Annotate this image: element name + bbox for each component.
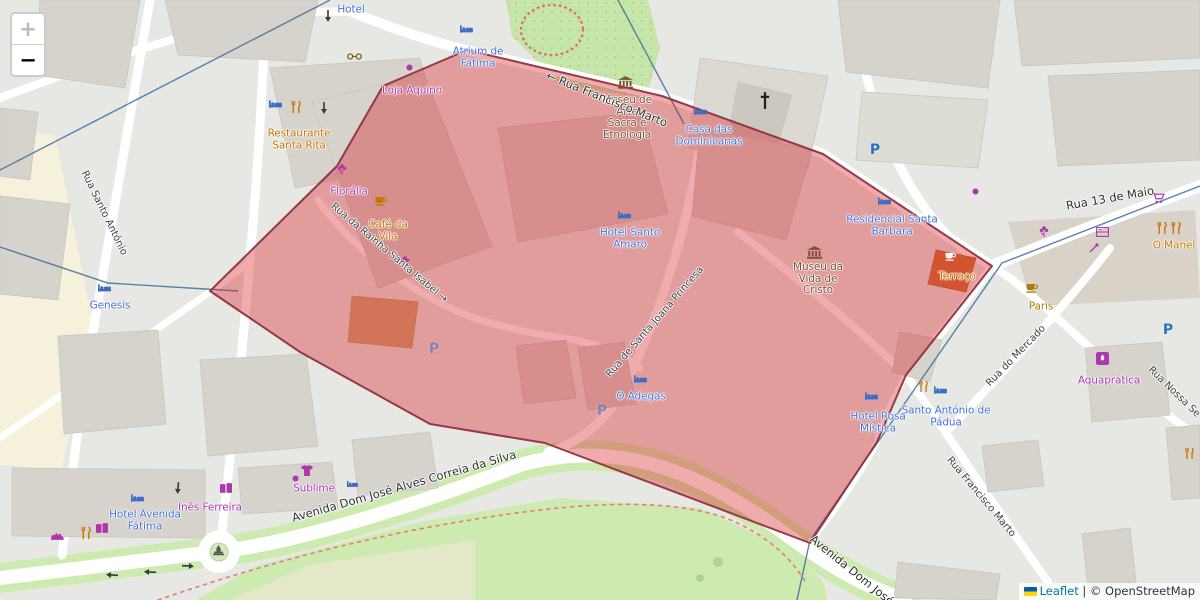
leaflet-link[interactable]: Leaflet	[1040, 584, 1079, 598]
poi-label-residencial-santa-barbara: Residencial Santa Barbara	[846, 215, 938, 238]
poi-label-atrium-de-fatima: Atrium de Fátima	[447, 47, 509, 70]
parking-symbol: P	[429, 341, 439, 357]
poi-label-aquapratica: Aquaprática	[1078, 375, 1140, 387]
poi-label-genesis: Genesis	[90, 300, 131, 312]
poi-label-floralia: Florália	[330, 186, 368, 198]
poi-label-restaurante-santa-rita: Restaurante Santa Rita	[258, 129, 340, 152]
poi-label-sublime: Sublime	[293, 483, 335, 495]
poi-label-o-manel: O Manel	[1153, 240, 1195, 252]
shop-dot-icon	[406, 64, 412, 70]
poi-label-casa-das-dominicanas: Casa das Dominicanas	[668, 125, 750, 148]
bed-icon	[460, 25, 473, 32]
poi-label-hotel-avenida-fatima: Hotel Avenida Fátima	[100, 510, 190, 533]
poi-label-hotel-rosa-mistica: Hotel Rosa Mística	[841, 412, 915, 435]
map-canvas[interactable]: P P P P Hotel Atrium de Fátima Loja Aqui…	[0, 0, 1200, 600]
poi-label-o-adegas: O Adegas	[616, 391, 666, 403]
parking-symbol: P	[597, 403, 607, 419]
parking-symbol: P	[1163, 322, 1173, 338]
attribution-separator: |	[1082, 584, 1086, 598]
poi-label-paris: Paris	[1029, 301, 1054, 313]
poi-label-hotel-santo-amaro: Hotel Santo Amaro	[594, 228, 666, 251]
poi-label-museu-vida-cristo: Museu da Vida de Cristo	[791, 262, 845, 297]
parking-symbol: P	[870, 142, 880, 158]
poi-label-hotel: Hotel	[337, 4, 364, 16]
shop-dot-icon	[972, 188, 978, 194]
poi-label-terraco: Terraço	[938, 271, 975, 283]
optician-glasses-icon	[348, 54, 362, 59]
water-sport-icon	[1096, 352, 1109, 365]
poi-label-loja-aquino: Loja Aquino	[382, 85, 442, 97]
bed-icon	[934, 386, 947, 393]
ukraine-flag-icon	[1024, 587, 1037, 596]
attribution-bar: Leaflet | © OpenStreetMap	[1019, 583, 1200, 600]
zoom-out-button[interactable]: −	[12, 44, 44, 75]
shop-dot-icon	[292, 475, 298, 481]
zoom-in-button[interactable]: +	[12, 14, 44, 44]
fork-knife-icon	[920, 381, 927, 392]
zoom-control: + −	[10, 12, 46, 77]
openstreetmap-link[interactable]: © OpenStreetMap	[1090, 584, 1195, 598]
